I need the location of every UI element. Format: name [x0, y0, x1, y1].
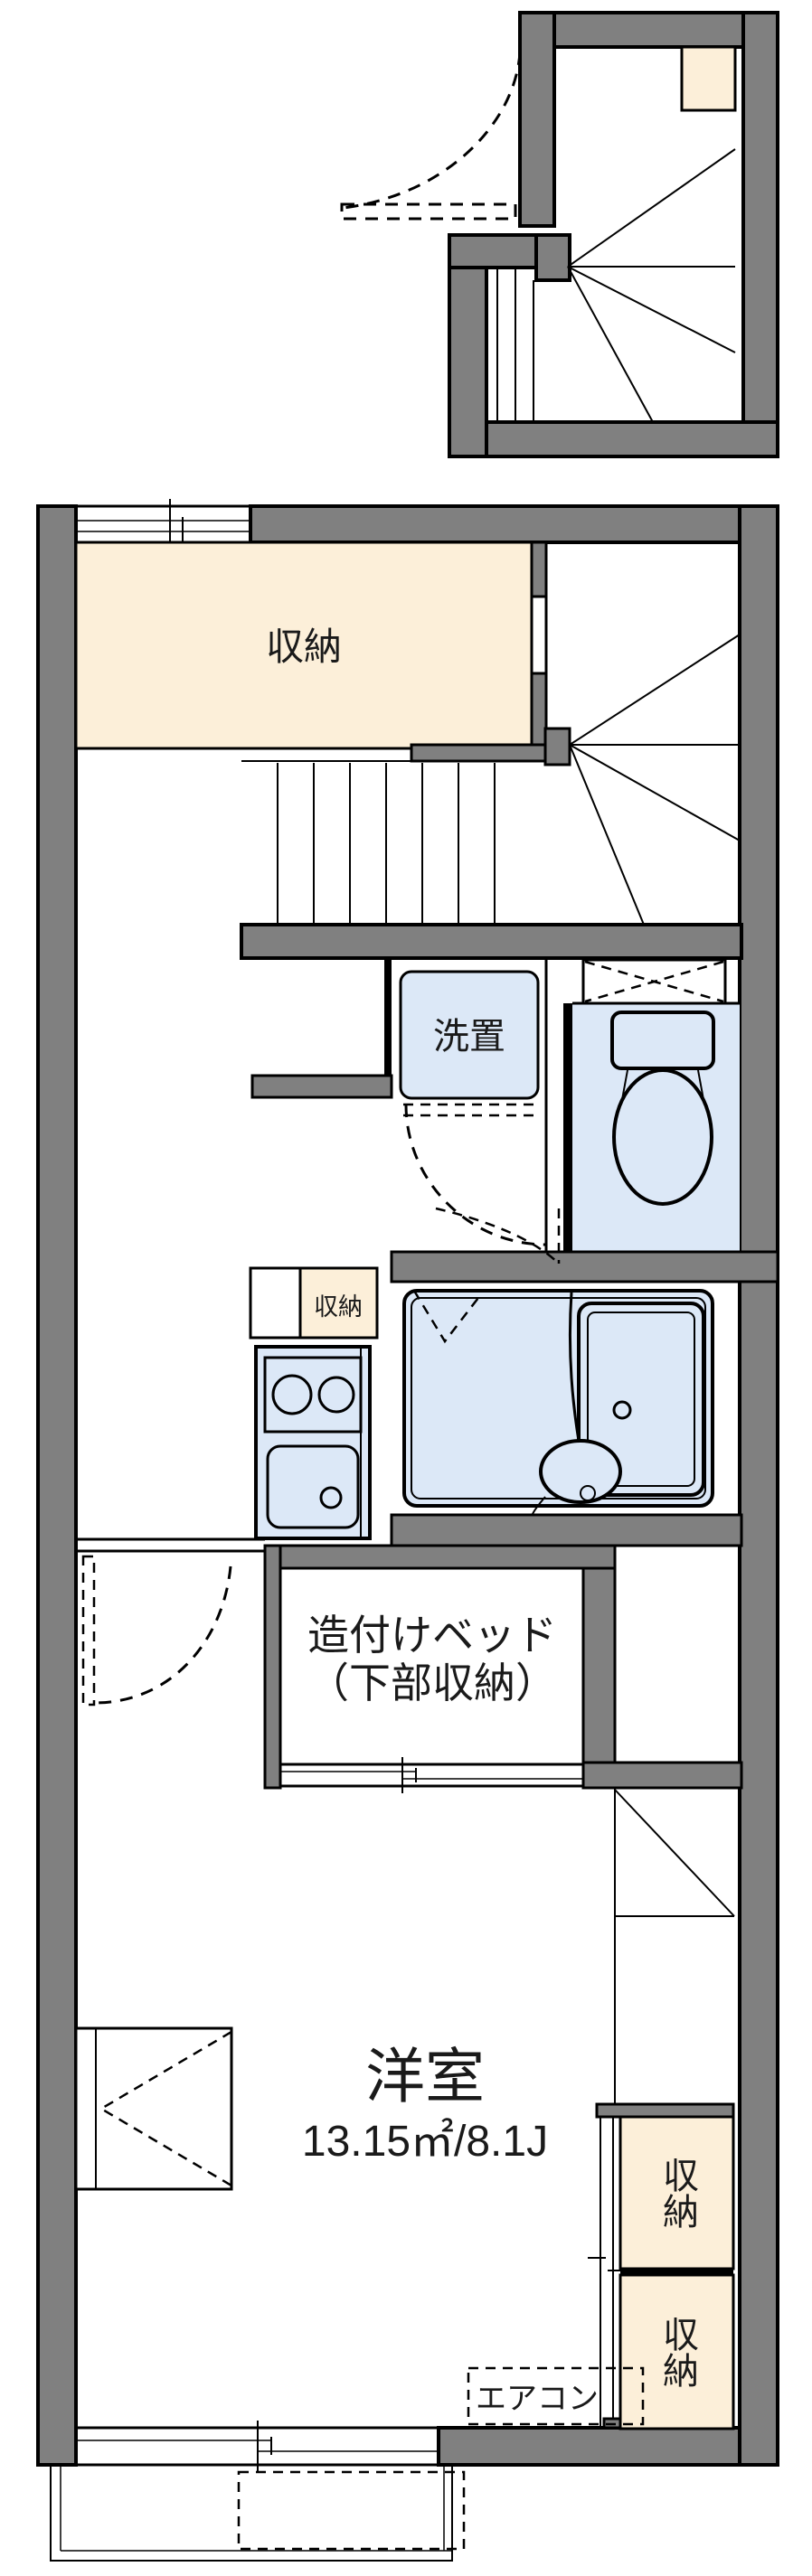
wall — [743, 13, 778, 456]
wall — [280, 1546, 615, 1568]
wall — [449, 422, 778, 456]
wall-bottom — [439, 2428, 740, 2465]
toilet-icon — [612, 1012, 713, 1204]
wall — [265, 1546, 280, 1788]
washer-space: 洗置 — [384, 958, 546, 1252]
kitchen-storage-label: 収納 — [314, 1293, 363, 1321]
entrance-stair-block — [342, 13, 778, 456]
wall — [563, 1003, 572, 1252]
door-leaf-icon — [83, 1556, 94, 1705]
floor-plan: 収納 洗置 — [0, 0, 812, 2576]
kitchen-side-box — [250, 1268, 300, 1338]
wall-below-stairs — [241, 925, 741, 958]
wall — [520, 13, 554, 226]
room-doorway — [76, 1539, 265, 1705]
wall-left — [38, 506, 76, 2465]
terrace — [51, 2465, 464, 2561]
aircon-label: エアコン — [476, 2382, 599, 2416]
window-x-icon — [583, 960, 725, 1003]
stair-newel-post — [536, 235, 570, 280]
aircon: エアコン — [468, 2368, 643, 2424]
closet-lower-label: 収納 — [657, 2316, 698, 2388]
room-name-label: 洋室 — [365, 2043, 485, 2110]
wall — [520, 13, 778, 47]
built-in-bed-room: 造付けベッド （下部収納） — [265, 1546, 741, 1793]
door-swing-icon — [94, 1566, 231, 1703]
window-bed — [280, 1757, 583, 1793]
bathroom — [404, 1291, 713, 1514]
wall — [411, 745, 546, 761]
wall — [583, 1568, 615, 1764]
western-room: 洋室 13.15㎡/8.1J — [76, 2028, 548, 2189]
wall-right — [740, 506, 778, 2465]
stove-icon — [265, 1358, 361, 1432]
wall-hall-stub — [252, 1076, 392, 1097]
window-bottom — [76, 2421, 439, 2471]
sink-icon — [268, 1446, 358, 1528]
wall-top — [250, 506, 778, 542]
room-area-label: 13.15㎡/8.1J — [302, 2118, 548, 2166]
entry-step-box — [682, 47, 735, 110]
washer-label: 洗置 — [433, 1017, 505, 1057]
door-swing-icon — [406, 1105, 546, 1245]
storage-room-label: 収納 — [266, 625, 342, 668]
closet-strip: 収納 収納 — [588, 1788, 734, 2429]
wall — [384, 958, 392, 1077]
bed-label-line2: （下部収納） — [307, 1659, 557, 1706]
stair-winders — [568, 149, 735, 422]
stair-treads — [497, 268, 533, 422]
wall — [532, 542, 546, 597]
wall — [392, 1252, 778, 1282]
wall — [583, 1763, 741, 1788]
toilet-room — [563, 960, 740, 1252]
stair-newel-post — [545, 729, 570, 765]
entrance-door-swing-icon — [342, 52, 520, 219]
terrace-dashed-area — [239, 2472, 464, 2549]
main-unit: 収納 洗置 — [38, 499, 778, 2471]
folding-table-icon — [76, 2028, 231, 2189]
bed-label-line1: 造付けベッド — [307, 1612, 557, 1659]
wall — [597, 2104, 733, 2117]
wall — [392, 1515, 741, 1546]
closet-upper-label: 収納 — [657, 2157, 698, 2229]
